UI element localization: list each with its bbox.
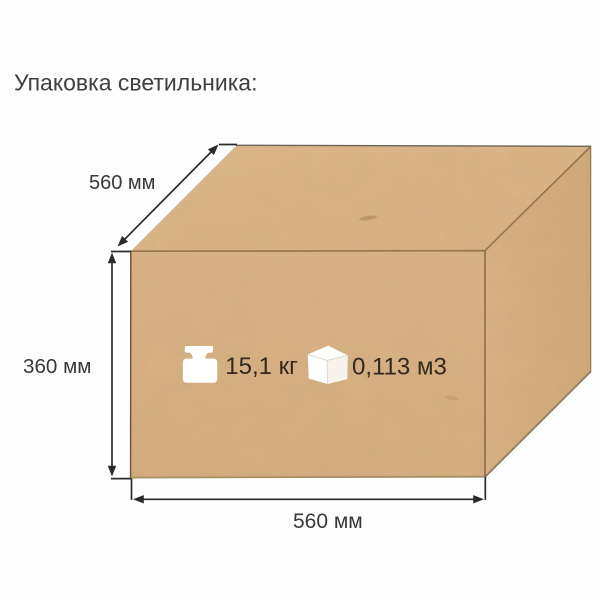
- svg-text:Упаковка светильника:: Упаковка светильника:: [14, 70, 257, 96]
- svg-text:560 мм: 560 мм: [89, 172, 155, 194]
- svg-text:560 мм: 560 мм: [293, 510, 363, 533]
- svg-text:360 мм: 360 мм: [23, 355, 91, 378]
- svg-text:0,113 м3: 0,113 м3: [352, 353, 447, 380]
- svg-text:15,1 кг: 15,1 кг: [225, 353, 298, 380]
